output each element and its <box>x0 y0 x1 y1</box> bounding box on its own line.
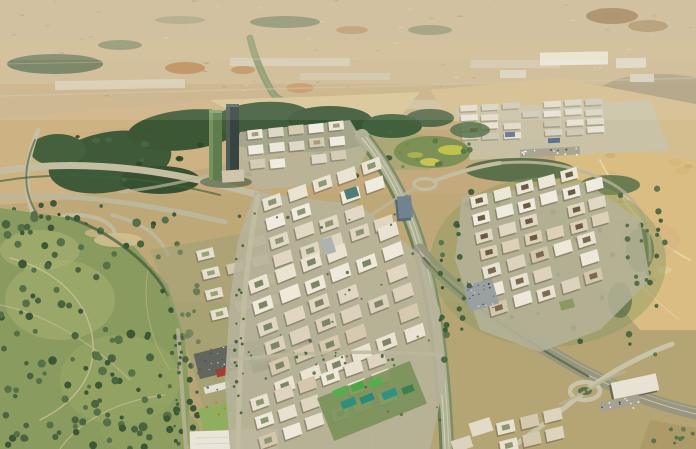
aerial-city-render <box>0 0 696 449</box>
aerial-render-canvas <box>0 0 696 449</box>
layer-haze <box>0 0 696 120</box>
